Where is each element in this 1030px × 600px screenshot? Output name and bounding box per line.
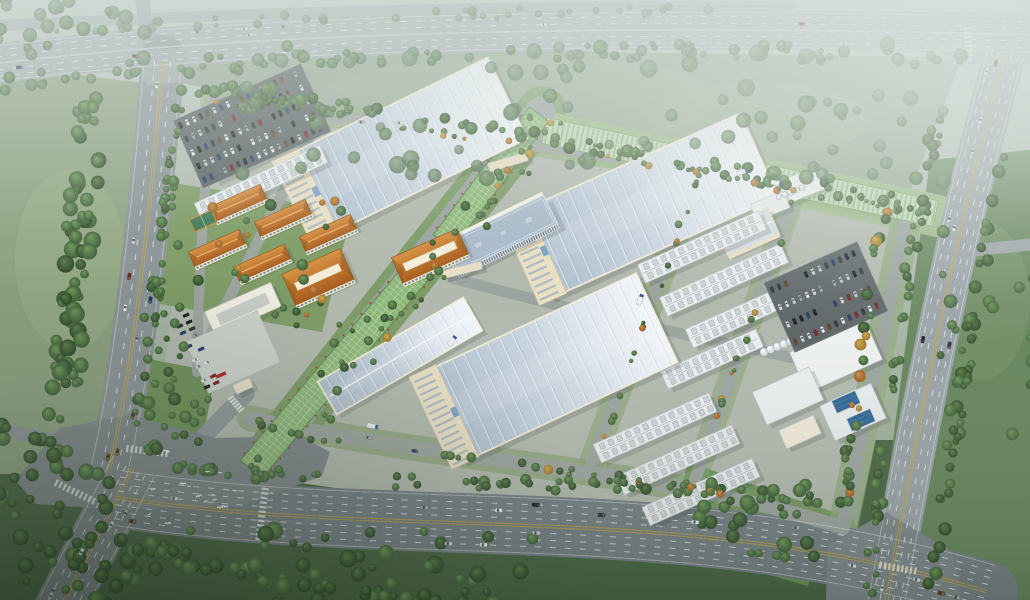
industrial-park-aerial-rendering [0, 0, 1030, 600]
atmosphere [0, 0, 1030, 600]
aerial-rendering-canvas [0, 0, 1030, 600]
